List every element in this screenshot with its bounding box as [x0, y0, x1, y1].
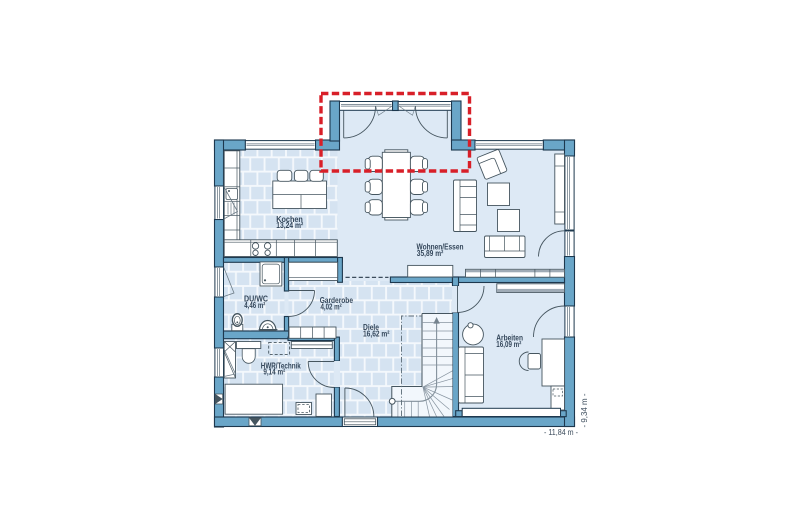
svg-text:35,89 m²: 35,89 m²: [417, 249, 444, 258]
svg-text:- 9,34 m -: - 9,34 m -: [580, 393, 589, 427]
svg-text:9,14 m²: 9,14 m²: [263, 368, 285, 377]
svg-text:13,24 m²: 13,24 m²: [276, 221, 303, 230]
svg-text:4,02 m²: 4,02 m²: [321, 302, 342, 311]
svg-text:16,09 m²: 16,09 m²: [496, 340, 521, 349]
svg-text:16,62 m²: 16,62 m²: [363, 329, 390, 338]
svg-text:4,46 m²: 4,46 m²: [244, 301, 265, 310]
svg-text:- 11,84 m -: - 11,84 m -: [544, 428, 578, 437]
